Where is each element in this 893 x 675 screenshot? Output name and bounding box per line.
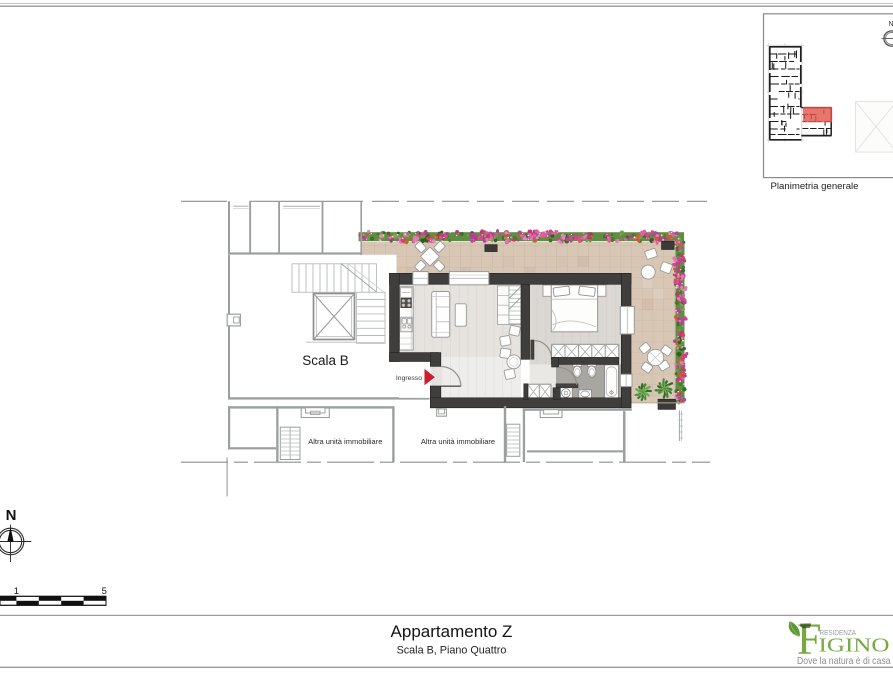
svg-text:Appartamento Z: Appartamento Z	[391, 622, 513, 641]
svg-text:N: N	[6, 507, 17, 524]
svg-text:N: N	[889, 21, 893, 28]
svg-text:IGINO: IGINO	[819, 635, 890, 657]
svg-text:Scala B, Piano Quattro: Scala B, Piano Quattro	[397, 645, 507, 657]
svg-text:Scala B: Scala B	[302, 353, 349, 368]
svg-text:Dove la natura è di casa: Dove la natura è di casa	[797, 656, 891, 667]
svg-text:1: 1	[14, 586, 19, 597]
svg-text:Altra unità immobiliare: Altra unità immobiliare	[421, 437, 495, 446]
svg-text:Altra unità immobiliare: Altra unità immobiliare	[308, 437, 382, 446]
svg-text:Ingresso: Ingresso	[396, 375, 422, 382]
svg-text:5: 5	[102, 586, 107, 597]
svg-text:Planimetria generale: Planimetria generale	[771, 181, 859, 192]
